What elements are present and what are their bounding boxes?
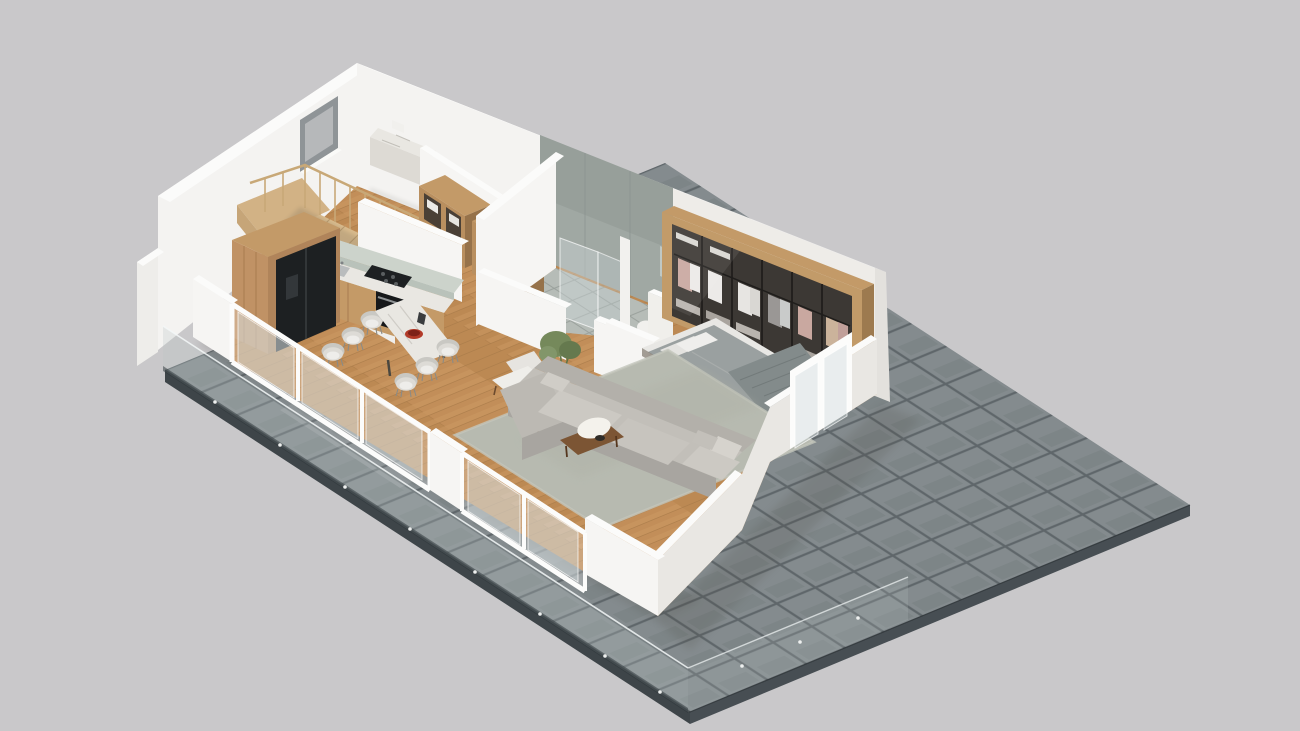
burner (381, 272, 385, 276)
wall-nw-step (137, 248, 158, 366)
burner (384, 279, 388, 283)
plant-leaves-2 (559, 341, 581, 359)
screenshot-canvas (0, 0, 1300, 731)
door-glass (824, 344, 847, 430)
bath-partition (620, 236, 630, 330)
table-decor (595, 435, 605, 441)
fridge-dispenser (286, 274, 298, 300)
burner (394, 282, 398, 286)
burner (391, 275, 395, 279)
door-glass (795, 362, 818, 448)
fruit-bowl-inner (408, 330, 420, 336)
floorplan-render (0, 0, 1300, 731)
faucet (341, 262, 344, 265)
